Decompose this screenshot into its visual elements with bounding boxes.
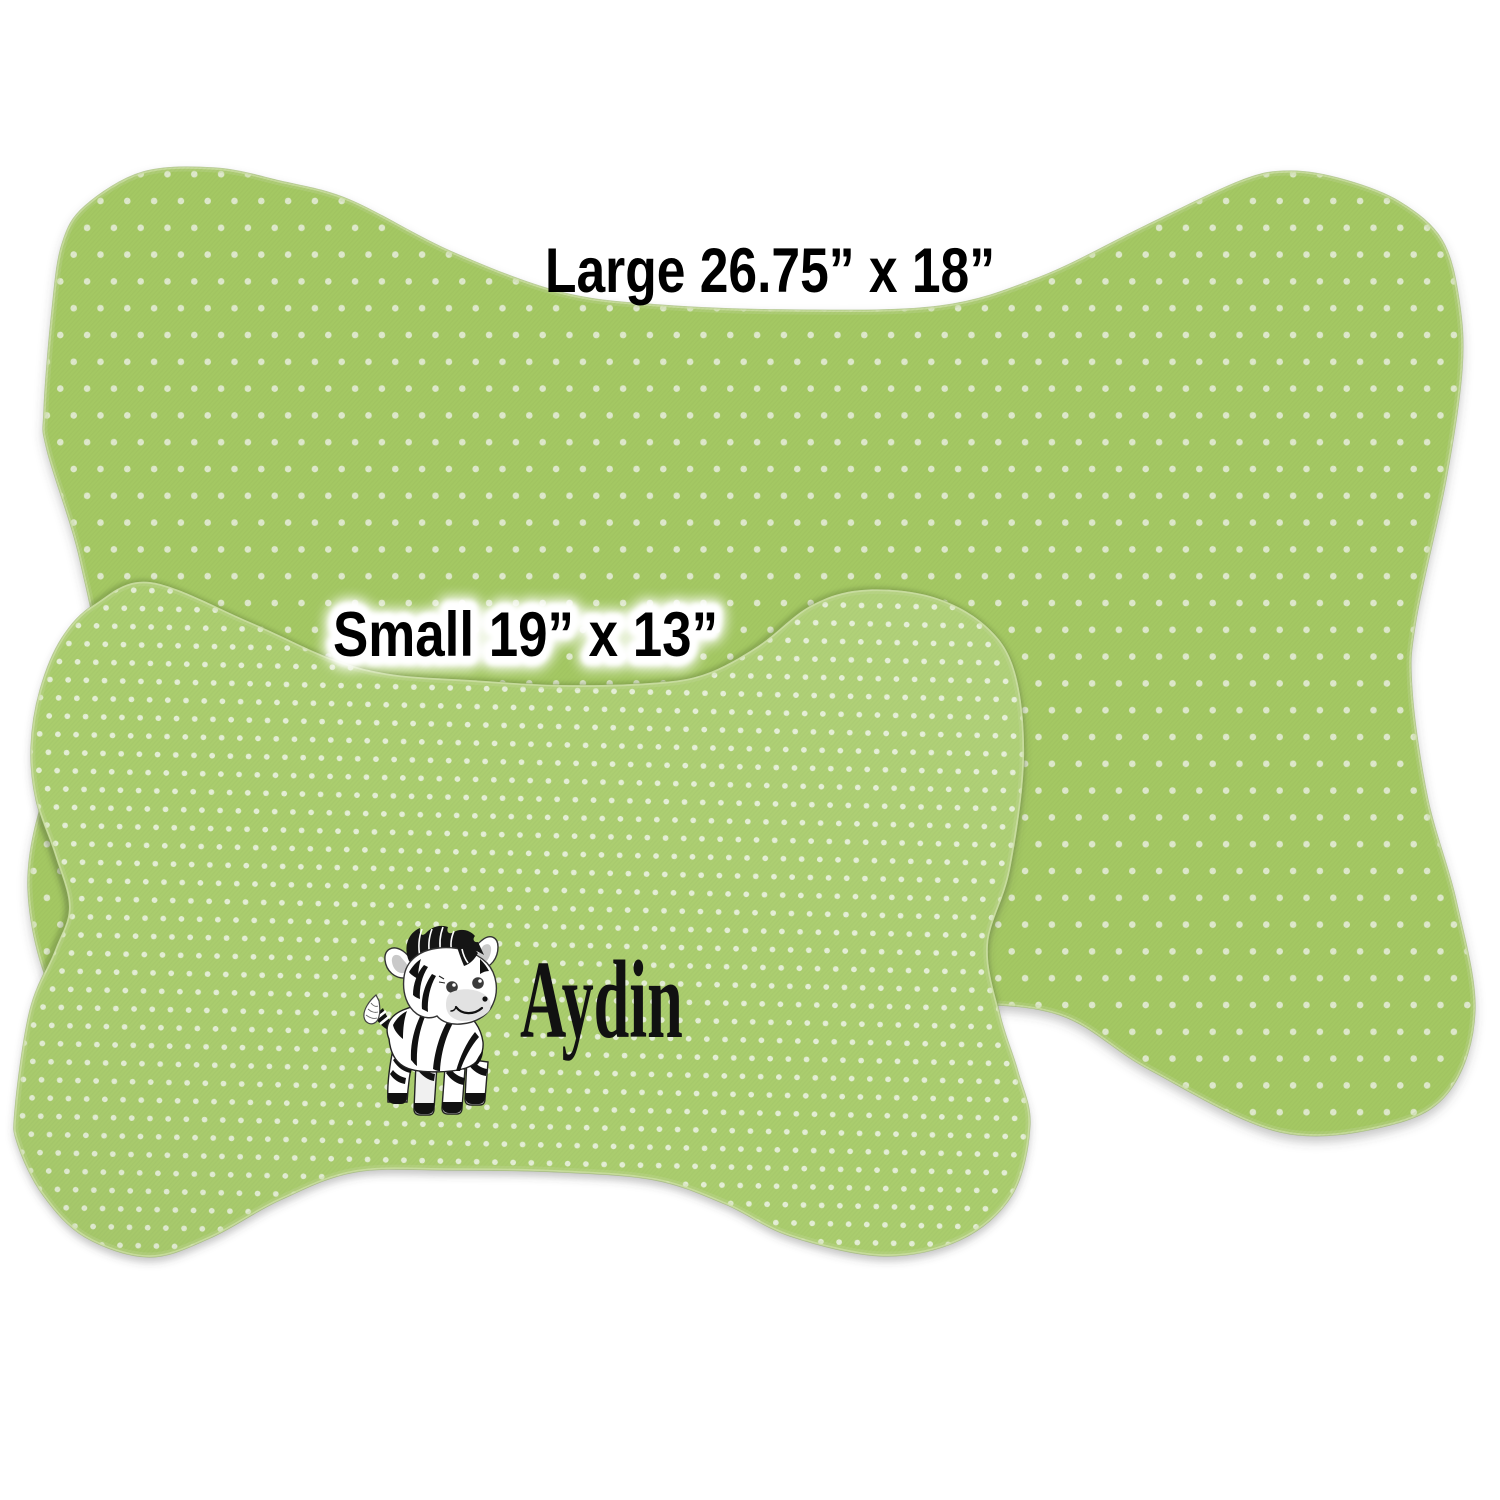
svg-text:Aydin: Aydin bbox=[520, 938, 683, 1062]
svg-text:Small 19” x 13”: Small 19” x 13” bbox=[333, 600, 718, 670]
svg-text:Large 26.75” x 18”: Large 26.75” x 18” bbox=[545, 236, 995, 306]
